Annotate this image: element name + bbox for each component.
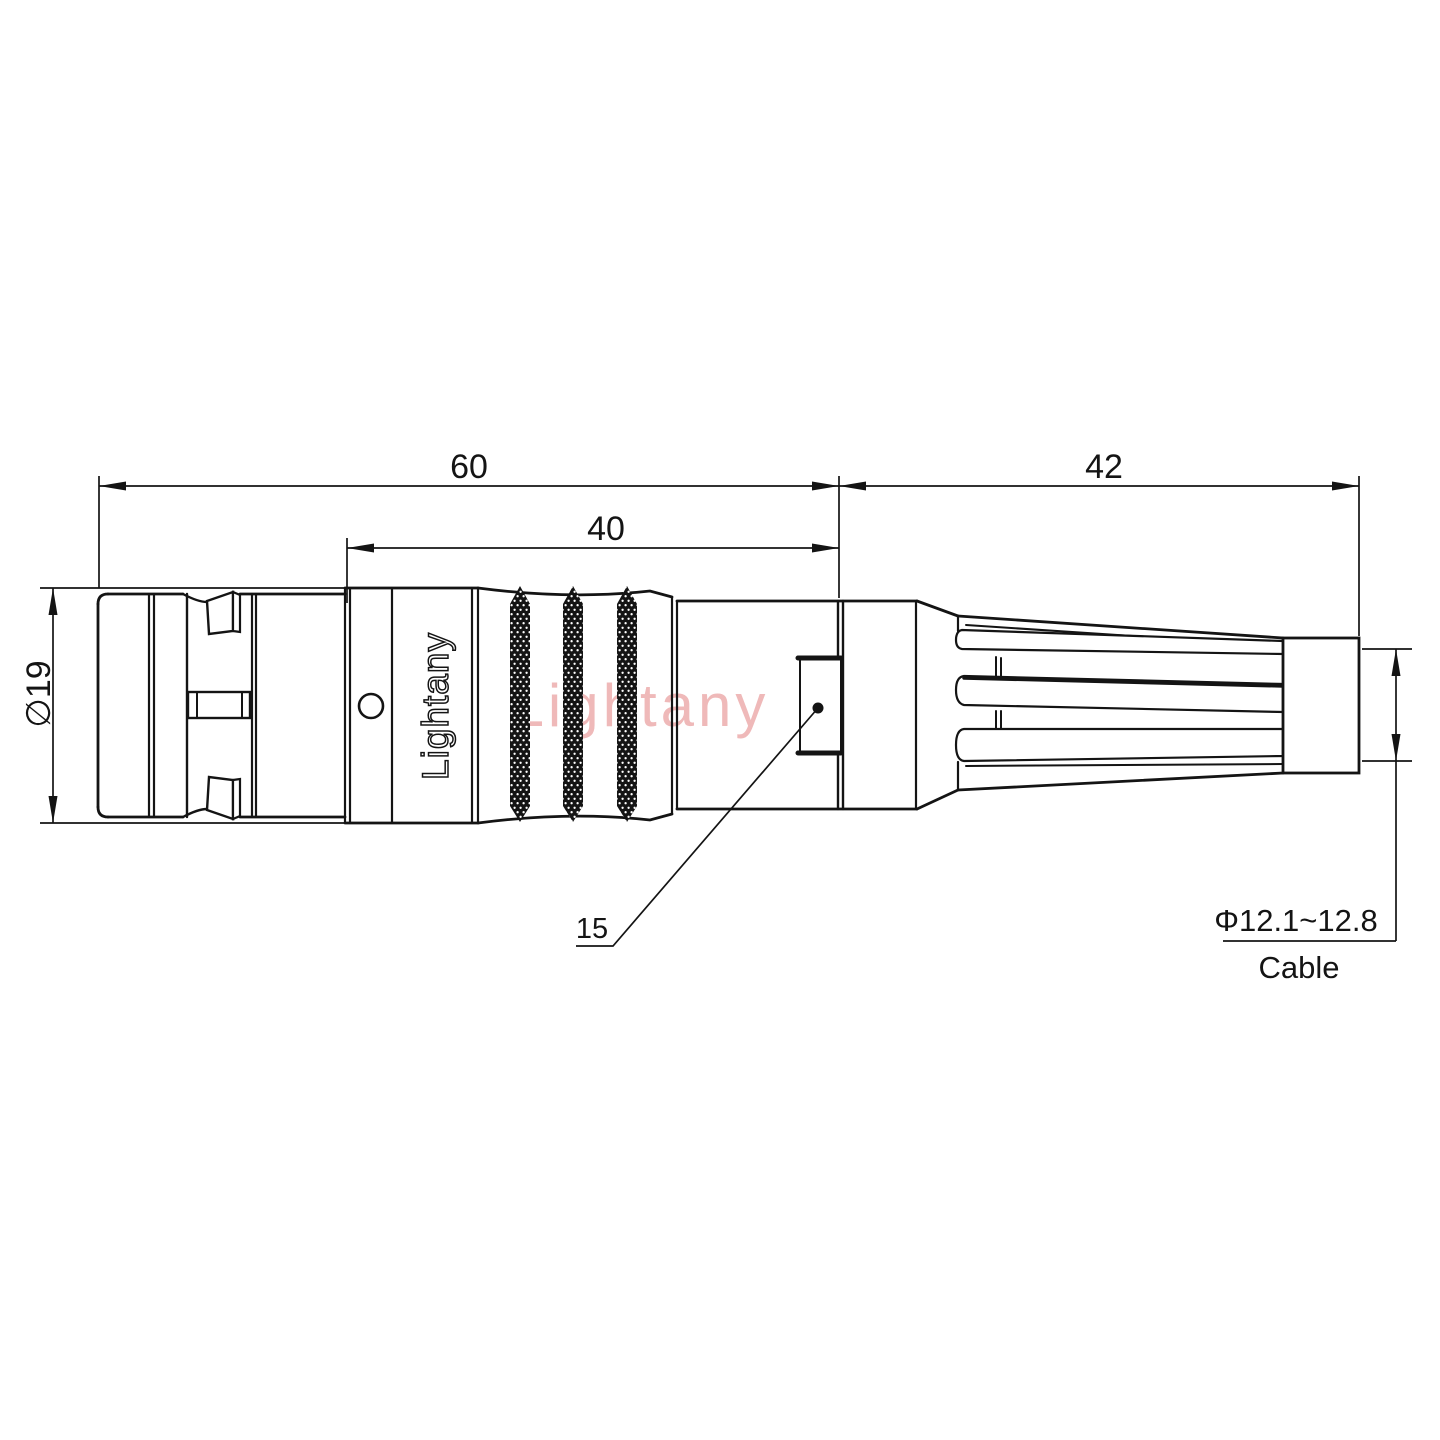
dim-text-60: 60 (450, 448, 488, 486)
body-engraving: Lightany (415, 632, 456, 780)
drawing-page: Lightany (0, 0, 1440, 1440)
knurl-strip-2 (563, 586, 583, 822)
key-wedge-bottom-side (233, 779, 240, 819)
dim-text-dia19: ∅19 (20, 660, 58, 727)
dim-text-40: 40 (587, 510, 625, 548)
boot-end-cap (1283, 638, 1359, 773)
cable-word-text: Cable (1259, 950, 1340, 985)
watermark-text: Lightany (511, 672, 770, 739)
dim-text-15: 15 (576, 913, 608, 945)
boot-rib-bottom (956, 729, 1283, 761)
cable-range-text: Φ12.1~12.8 (1214, 903, 1378, 938)
key-wedge-top-side (233, 592, 240, 632)
technical-drawing: Lightany (0, 0, 1440, 1440)
knurl-strip-3 (617, 586, 637, 822)
dim-text-42: 42 (1085, 448, 1123, 486)
knurl-strip-1 (510, 586, 530, 822)
